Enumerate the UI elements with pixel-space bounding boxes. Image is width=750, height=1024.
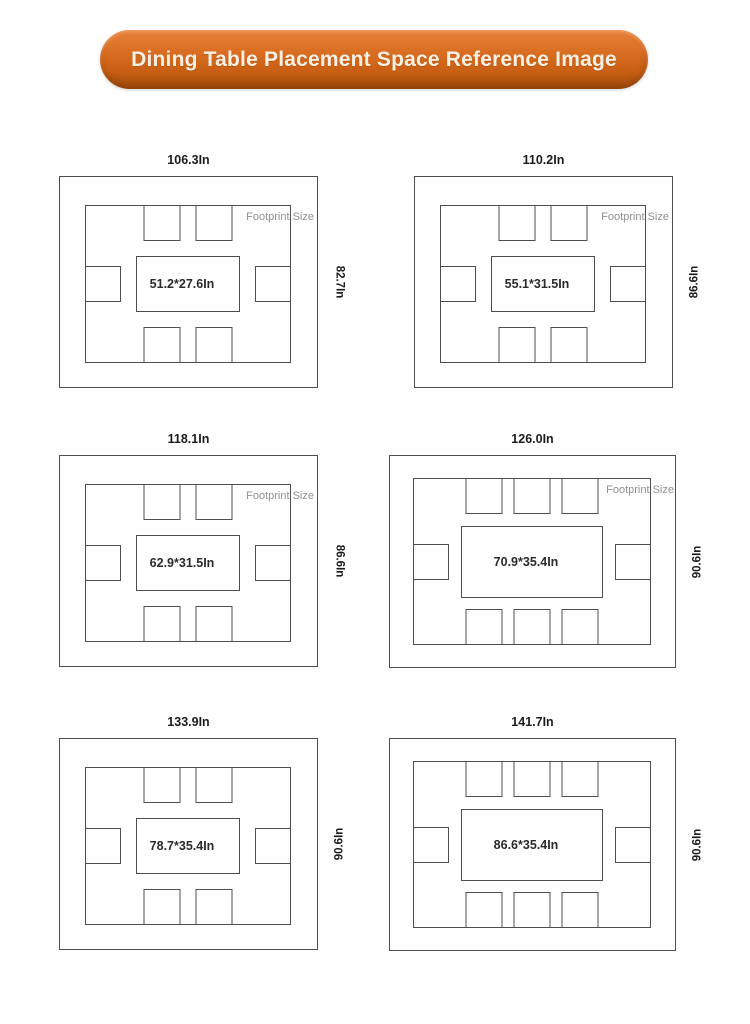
- chair-square: [610, 266, 646, 302]
- room-outline: 78.7*35.4In 90.6In: [59, 738, 318, 950]
- chair-row-top: [466, 761, 599, 797]
- room-outline: 70.9*35.4In Footprint Size 90.6In: [389, 455, 676, 668]
- width-dimension-label: 126.0In: [389, 432, 676, 450]
- chair-square: [466, 478, 503, 514]
- chair-square: [196, 767, 233, 803]
- chair-square: [144, 606, 181, 642]
- footprint-size-label: Footprint Size: [246, 490, 314, 502]
- width-dimension-label: 133.9In: [59, 715, 318, 733]
- depth-dimension-text: 86.6In: [688, 266, 700, 299]
- chair-square: [144, 205, 181, 241]
- chair-square: [514, 761, 551, 797]
- chair-row-top: [499, 205, 588, 241]
- depth-dimension-text: 82.7In: [333, 266, 345, 299]
- depth-dimension-label: 86.6In: [672, 177, 717, 387]
- footprint-outline: 78.7*35.4In: [85, 767, 291, 925]
- depth-dimension-text: 90.6In: [333, 828, 345, 861]
- depth-dimension-text: 90.6In: [691, 545, 703, 578]
- depth-dimension-text: 90.6In: [691, 828, 703, 861]
- chair-square: [466, 609, 503, 645]
- depth-dimension-label: 82.7In: [317, 177, 362, 387]
- diagram-dining-3: 118.1In 62.9*31.5In Footprint Size: [59, 432, 318, 667]
- depth-dimension-label: 86.6In: [317, 456, 362, 666]
- chair-square: [144, 889, 181, 925]
- chair-square: [144, 767, 181, 803]
- table-box: 70.9*35.4In: [461, 526, 603, 598]
- chair-square: [562, 761, 599, 797]
- table-box: 86.6*35.4In: [461, 809, 603, 881]
- chair-square: [440, 266, 476, 302]
- chair-row-bottom: [144, 327, 233, 363]
- chair-square: [144, 484, 181, 520]
- diagram-dining-4: 126.0In 70.9*35.4In Footprint Si: [389, 432, 676, 668]
- chair-square: [85, 266, 121, 302]
- table-box: 51.2*27.6In: [136, 256, 240, 312]
- chair-square: [562, 892, 599, 928]
- table-box: 55.1*31.5In: [491, 256, 595, 312]
- diagram-dining-2: 110.2In 55.1*31.5In Footprint Size: [414, 153, 673, 388]
- table-size-label: 78.7*35.4In: [150, 839, 227, 853]
- chair-square: [85, 828, 121, 864]
- chair-row-top: [144, 767, 233, 803]
- chair-row-bottom: [466, 609, 599, 645]
- chair-square: [196, 606, 233, 642]
- table-size-label: 62.9*31.5In: [150, 556, 227, 570]
- chair-square: [615, 544, 651, 580]
- chair-square: [499, 205, 536, 241]
- room-outline: 55.1*31.5In Footprint Size 86.6In: [414, 176, 673, 388]
- width-dimension-label: 110.2In: [414, 153, 673, 171]
- chair-square: [255, 266, 291, 302]
- footprint-size-label: Footprint Size: [601, 211, 669, 223]
- table-box: 78.7*35.4In: [136, 818, 240, 874]
- table-size-label: 51.2*27.6In: [150, 277, 227, 291]
- page-title: Dining Table Placement Space Reference I…: [131, 48, 617, 72]
- chair-square: [85, 545, 121, 581]
- chair-square: [196, 889, 233, 925]
- width-dimension-label: 141.7In: [389, 715, 676, 733]
- chair-square: [551, 205, 588, 241]
- chair-row-top: [144, 205, 233, 241]
- width-dimension-label: 106.3In: [59, 153, 318, 171]
- page-canvas: Dining Table Placement Space Reference I…: [0, 0, 750, 1024]
- chair-square: [514, 609, 551, 645]
- chair-row-top: [466, 478, 599, 514]
- chair-square: [255, 828, 291, 864]
- footprint-size-label: Footprint Size: [246, 211, 314, 223]
- room-outline: 51.2*27.6In Footprint Size 82.7In: [59, 176, 318, 388]
- table-size-label: 70.9*35.4In: [494, 555, 571, 569]
- footprint-outline: 62.9*31.5In Footprint Size: [85, 484, 291, 642]
- chair-square: [466, 761, 503, 797]
- depth-dimension-text: 86.6In: [333, 545, 345, 578]
- footprint-outline: 55.1*31.5In Footprint Size: [440, 205, 646, 363]
- footprint-outline: 86.6*35.4In: [413, 761, 651, 928]
- room-outline: 62.9*31.5In Footprint Size 86.6In: [59, 455, 318, 667]
- table-box: 62.9*31.5In: [136, 535, 240, 591]
- diagram-dining-6: 141.7In 86.6*35.4In: [389, 715, 676, 951]
- chair-row-bottom: [144, 606, 233, 642]
- table-size-label: 55.1*31.5In: [505, 277, 582, 291]
- depth-dimension-label: 90.6In: [675, 456, 720, 667]
- chair-square: [514, 892, 551, 928]
- table-size-label: 86.6*35.4In: [494, 838, 571, 852]
- chair-square: [615, 827, 651, 863]
- chair-square: [499, 327, 536, 363]
- chair-square: [551, 327, 588, 363]
- footprint-size-label: Footprint Size: [606, 484, 674, 496]
- chair-row-bottom: [499, 327, 588, 363]
- chair-square: [466, 892, 503, 928]
- chair-square: [413, 544, 449, 580]
- width-dimension-label: 118.1In: [59, 432, 318, 450]
- room-outline: 86.6*35.4In 90.6In: [389, 738, 676, 951]
- chair-square: [514, 478, 551, 514]
- chair-row-top: [144, 484, 233, 520]
- depth-dimension-label: 90.6In: [675, 739, 720, 950]
- diagram-dining-1: 106.3In 51.2*27.6In Footprint Size: [59, 153, 318, 388]
- chair-square: [255, 545, 291, 581]
- depth-dimension-label: 90.6In: [317, 739, 362, 949]
- chair-row-bottom: [144, 889, 233, 925]
- chair-row-bottom: [466, 892, 599, 928]
- footprint-outline: 70.9*35.4In Footprint Size: [413, 478, 651, 645]
- chair-square: [196, 327, 233, 363]
- chair-square: [562, 609, 599, 645]
- title-banner: Dining Table Placement Space Reference I…: [100, 30, 648, 89]
- chair-square: [196, 484, 233, 520]
- footprint-outline: 51.2*27.6In Footprint Size: [85, 205, 291, 363]
- chair-square: [144, 327, 181, 363]
- diagram-dining-5: 133.9In 78.7*35.4In 90.6In: [59, 715, 318, 950]
- chair-square: [562, 478, 599, 514]
- chair-square: [196, 205, 233, 241]
- chair-square: [413, 827, 449, 863]
